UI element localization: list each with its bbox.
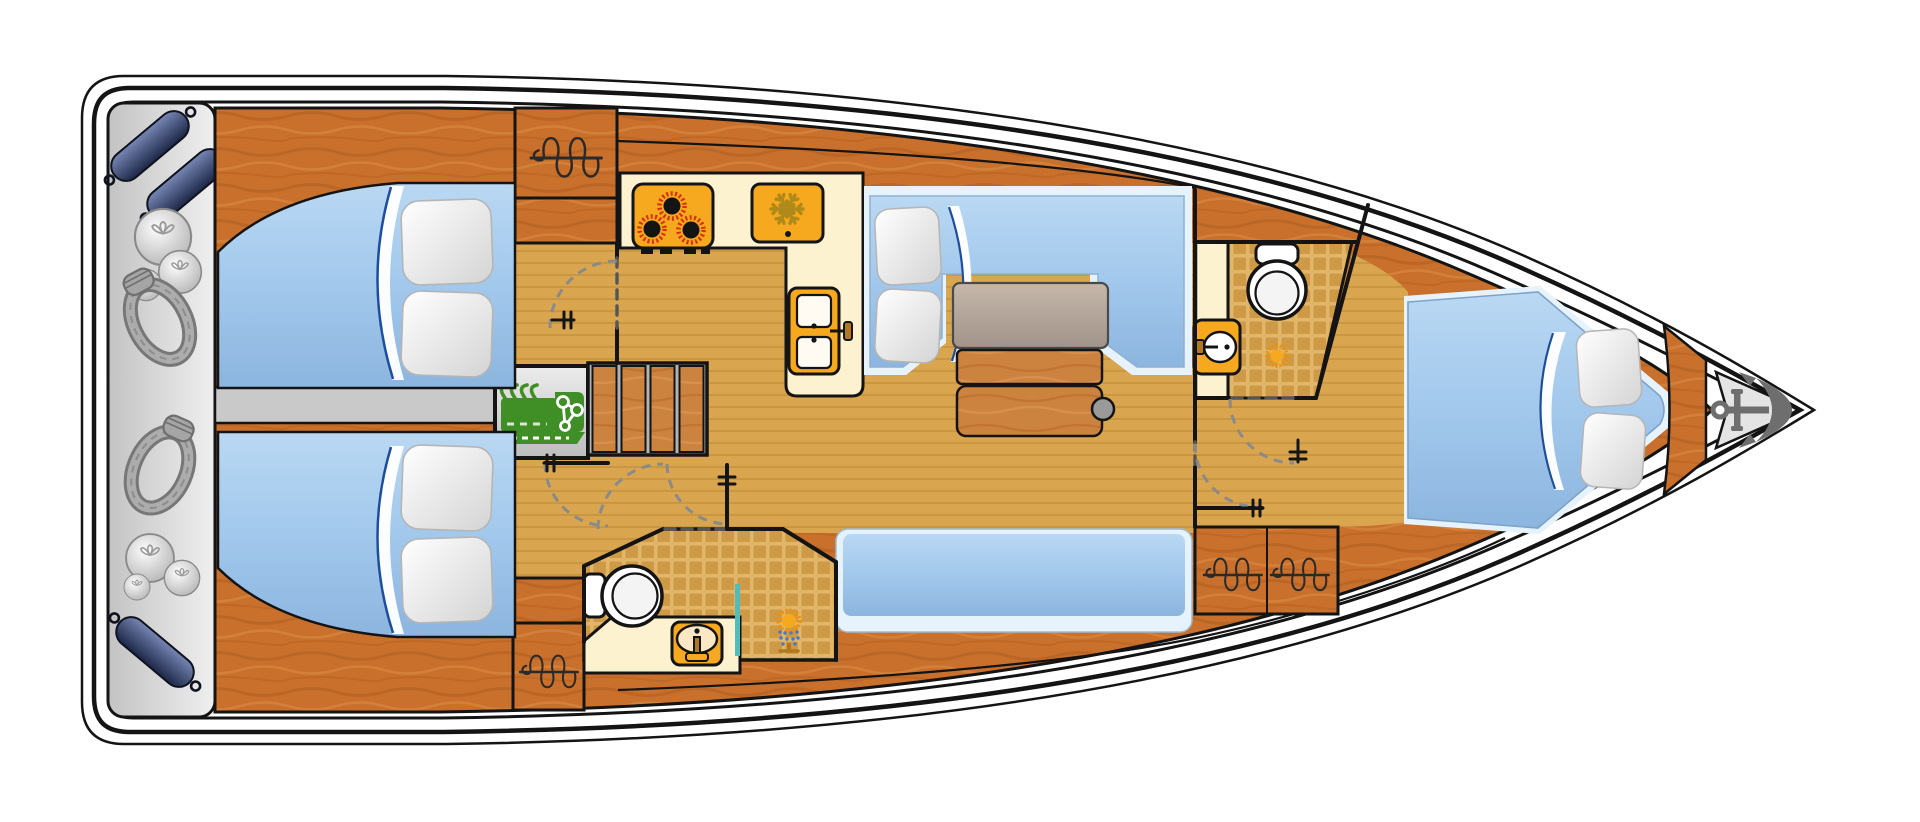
pillow [401,290,494,377]
bathroom-sink-icon [1194,320,1240,374]
toilet-icon [1248,244,1306,319]
pillow [401,444,494,531]
pillow [1579,412,1646,490]
toilet-icon [584,566,662,626]
table-knob [1092,398,1114,420]
pillow [874,288,942,363]
shower-curtain [735,584,740,656]
head-mid [584,529,836,673]
pillow [401,536,494,623]
table-top [957,350,1102,384]
ball-fender-icon [164,560,199,595]
ball-fender-icon [124,574,150,600]
yacht-floor-plan [0,0,1920,822]
pillow [874,206,942,285]
table-top [957,386,1102,436]
pillow [401,198,494,285]
salon-table [953,283,1114,436]
aft-cabin-divider [215,387,497,423]
floor-plan-canvas [0,0,1920,822]
table-folding-leaf [953,283,1108,348]
bathroom-sink-icon [672,622,722,665]
companionway-steps [588,363,707,455]
fridge-icon [752,184,823,242]
pillow [1575,328,1642,408]
stove-icon [633,184,713,254]
bow-wood-trim [1664,326,1706,494]
forward-cabinet [1195,527,1338,614]
salon-bench [836,529,1192,632]
